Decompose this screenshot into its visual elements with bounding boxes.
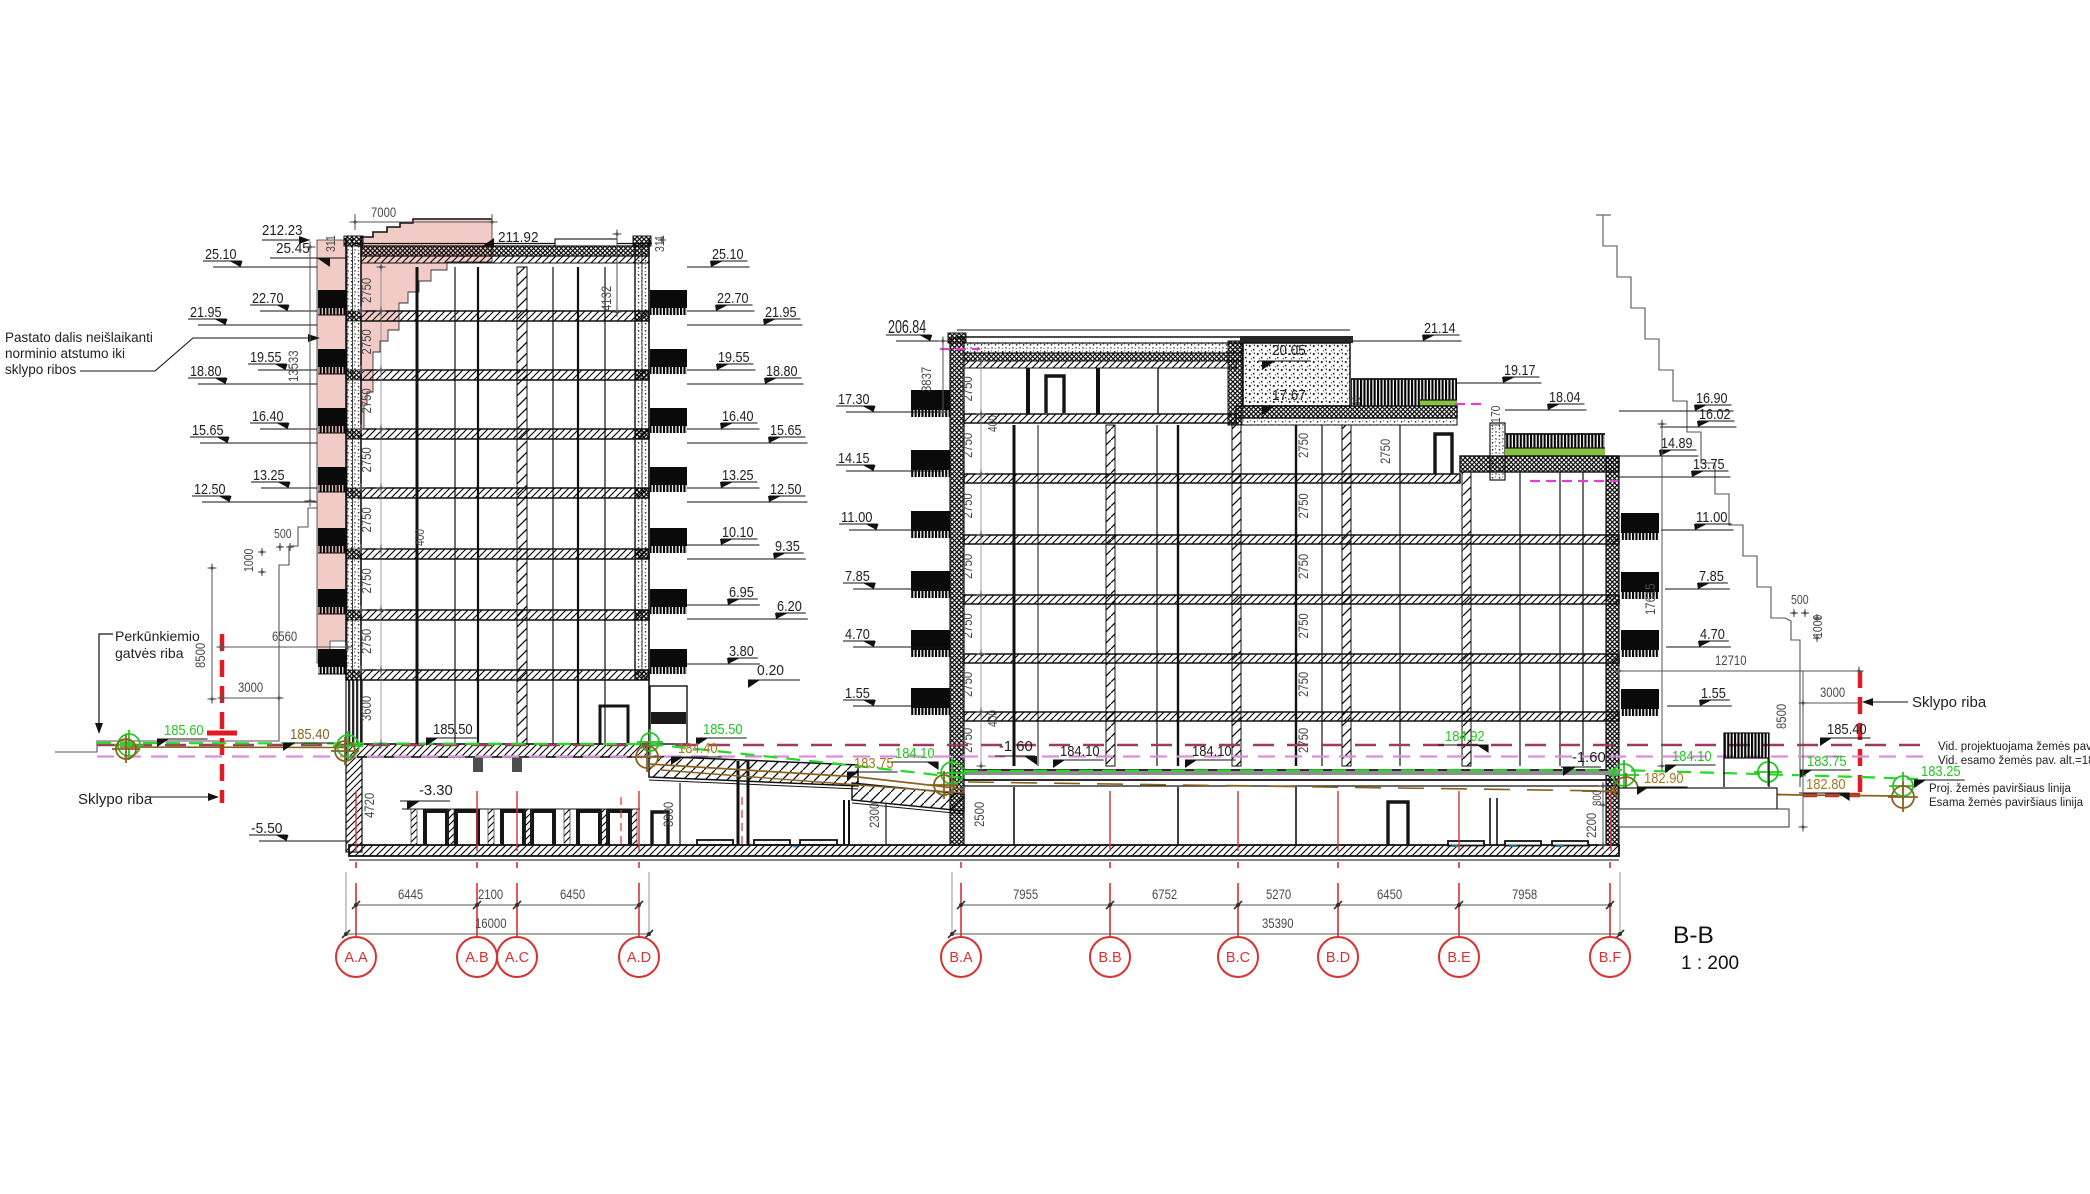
svg-text:3000: 3000: [238, 679, 263, 695]
svg-text:206.84: 206.84: [888, 316, 926, 337]
svg-text:1000: 1000: [241, 549, 256, 572]
svg-text:Esama žemės paviršiaus linija: Esama žemės paviršiaus linija: [1929, 797, 2084, 809]
svg-text:B.F: B.F: [1599, 950, 1622, 966]
svg-text:22.70: 22.70: [717, 290, 749, 307]
svg-text:1170: 1170: [1489, 405, 1503, 428]
svg-text:6560: 6560: [272, 628, 297, 644]
svg-text:400: 400: [413, 529, 427, 546]
svg-text:7.85: 7.85: [1699, 568, 1724, 585]
svg-text:8500: 8500: [192, 643, 208, 668]
svg-text:2750: 2750: [1295, 613, 1311, 638]
svg-text:13.25: 13.25: [722, 467, 754, 484]
svg-text:311: 311: [653, 235, 667, 252]
svg-text:2750: 2750: [358, 568, 374, 593]
svg-text:185.50: 185.50: [433, 721, 473, 738]
svg-text:184.10: 184.10: [1060, 743, 1100, 760]
svg-text:2750: 2750: [358, 507, 374, 532]
svg-text:B.E: B.E: [1447, 950, 1471, 966]
svg-text:2750: 2750: [358, 388, 374, 413]
svg-text:6450: 6450: [1377, 886, 1402, 902]
svg-text:A.A: A.A: [344, 950, 368, 966]
svg-text:185.40: 185.40: [1827, 721, 1867, 738]
svg-text:25.10: 25.10: [712, 246, 744, 263]
svg-text:-5.50: -5.50: [251, 820, 283, 837]
svg-text:7000: 7000: [371, 204, 396, 220]
svg-text:2200: 2200: [1583, 813, 1599, 838]
svg-text:2750: 2750: [1295, 728, 1311, 753]
svg-text:12.50: 12.50: [194, 481, 226, 498]
svg-text:2500: 2500: [971, 802, 987, 827]
svg-text:2750: 2750: [959, 613, 975, 638]
svg-text:5270: 5270: [1266, 886, 1291, 902]
svg-text:Vid. esamo žemės pav. alt.=184: Vid. esamo žemės pav. alt.=184.92: [1938, 755, 2090, 767]
svg-text:Sklypo riba: Sklypo riba: [1912, 694, 1987, 711]
svg-text:184.10: 184.10: [895, 745, 935, 762]
svg-text:1.55: 1.55: [845, 685, 870, 702]
svg-text:8500: 8500: [1773, 704, 1789, 729]
svg-text:20.05: 20.05: [1272, 342, 1306, 359]
svg-text:3837: 3837: [918, 367, 934, 392]
svg-text:-1.60: -1.60: [999, 738, 1033, 755]
svg-text:2750: 2750: [1295, 554, 1311, 579]
svg-text:2750: 2750: [358, 447, 374, 472]
svg-text:12710: 12710: [1715, 652, 1747, 668]
svg-text:sklypo ribos: sklypo ribos: [5, 362, 77, 377]
svg-text:A.D: A.D: [627, 950, 651, 966]
svg-text:17.30: 17.30: [838, 391, 870, 408]
svg-text:11.00: 11.00: [1696, 509, 1728, 526]
svg-text:16.40: 16.40: [252, 408, 284, 425]
svg-text:3.80: 3.80: [729, 643, 754, 660]
svg-text:19.55: 19.55: [718, 349, 750, 366]
svg-text:25.10: 25.10: [205, 246, 237, 263]
svg-text:2750: 2750: [959, 493, 975, 518]
svg-text:Pastato dalis neišlaikanti: Pastato dalis neišlaikanti: [5, 330, 153, 345]
svg-text:7955: 7955: [1013, 886, 1038, 902]
svg-text:10.10: 10.10: [722, 524, 754, 541]
svg-text:4132: 4132: [598, 286, 614, 311]
svg-text:21.14: 21.14: [1424, 320, 1456, 337]
svg-text:-1.60: -1.60: [1572, 749, 1606, 766]
svg-text:18.80: 18.80: [190, 363, 222, 380]
svg-text:25.45: 25.45: [276, 240, 310, 257]
svg-text:15.65: 15.65: [192, 422, 224, 439]
svg-text:7958: 7958: [1512, 886, 1537, 902]
svg-text:-3.30: -3.30: [419, 782, 453, 799]
svg-text:3600: 3600: [358, 696, 374, 721]
svg-text:1.55: 1.55: [1701, 685, 1726, 702]
svg-text:18.04: 18.04: [1549, 389, 1581, 406]
svg-text:4.70: 4.70: [845, 626, 870, 643]
svg-text:80: 80: [1351, 396, 1363, 406]
svg-text:2750: 2750: [959, 728, 975, 753]
svg-text:19.17: 19.17: [1504, 362, 1536, 379]
svg-text:185.40: 185.40: [290, 726, 330, 743]
svg-text:16.40: 16.40: [722, 408, 754, 425]
svg-text:6.20: 6.20: [777, 598, 802, 615]
svg-text:212.23: 212.23: [262, 222, 303, 239]
svg-text:183.75: 183.75: [1807, 753, 1847, 770]
svg-text:19.55: 19.55: [250, 349, 282, 366]
svg-text:17.67: 17.67: [1272, 387, 1306, 404]
svg-text:311: 311: [324, 235, 338, 252]
svg-text:16.02: 16.02: [1699, 406, 1731, 423]
svg-text:21.95: 21.95: [765, 304, 797, 321]
svg-text:500: 500: [274, 526, 292, 541]
svg-text:2750: 2750: [1295, 433, 1311, 458]
svg-text:15.65: 15.65: [770, 422, 802, 439]
svg-text:9.35: 9.35: [775, 538, 800, 555]
svg-text:184.92: 184.92: [1445, 728, 1485, 745]
svg-text:22.70: 22.70: [252, 290, 284, 307]
svg-text:400: 400: [986, 710, 1000, 727]
svg-text:185.60: 185.60: [164, 722, 204, 739]
svg-text:Perkūnkiemio: Perkūnkiemio: [115, 628, 200, 644]
svg-text:4.70: 4.70: [1700, 626, 1725, 643]
svg-text:18.80: 18.80: [766, 363, 798, 380]
svg-text:2750: 2750: [959, 433, 975, 458]
svg-text:2750: 2750: [959, 554, 975, 579]
svg-text:3300: 3300: [660, 802, 676, 827]
svg-text:2750: 2750: [358, 329, 374, 354]
svg-text:500: 500: [1791, 592, 1809, 607]
svg-text:2750: 2750: [1377, 439, 1393, 464]
svg-text:13533: 13533: [285, 350, 301, 382]
svg-text:16000: 16000: [475, 915, 507, 931]
svg-text:184.10: 184.10: [1672, 748, 1712, 765]
svg-text:gatvės riba: gatvės riba: [115, 645, 184, 661]
svg-text:2750: 2750: [1295, 672, 1311, 697]
svg-text:2750: 2750: [959, 672, 975, 697]
svg-text:12.50: 12.50: [770, 481, 802, 498]
svg-text:211.92: 211.92: [498, 229, 539, 246]
svg-text:16.90: 16.90: [1696, 390, 1728, 407]
svg-text:B.B: B.B: [1098, 950, 1121, 966]
svg-text:2300: 2300: [866, 803, 882, 828]
svg-text:13.75: 13.75: [1693, 456, 1725, 473]
svg-text:4720: 4720: [361, 793, 377, 818]
svg-text:6445: 6445: [398, 886, 423, 902]
svg-text:A.C: A.C: [505, 950, 529, 966]
svg-text:182.90: 182.90: [1644, 770, 1684, 787]
svg-text:B.C: B.C: [1226, 950, 1250, 966]
svg-text:Proj. žemės paviršiaus linija: Proj. žemės paviršiaus linija: [1929, 783, 2071, 795]
svg-text:800: 800: [1590, 790, 1604, 806]
svg-text:7.85: 7.85: [845, 568, 870, 585]
svg-text:6752: 6752: [1152, 886, 1177, 902]
svg-text:B-B: B-B: [1673, 922, 1714, 949]
svg-text:2750: 2750: [1295, 493, 1311, 518]
svg-text:182.80: 182.80: [1806, 776, 1846, 793]
svg-text:35390: 35390: [1262, 915, 1294, 931]
svg-text:2750: 2750: [959, 376, 975, 401]
svg-text:3000: 3000: [1820, 684, 1845, 700]
svg-text:2750: 2750: [358, 278, 374, 303]
svg-text:A.B: A.B: [465, 950, 488, 966]
svg-text:2100: 2100: [478, 886, 503, 902]
svg-text:B.D: B.D: [1326, 950, 1350, 966]
svg-text:185.50: 185.50: [703, 721, 743, 738]
svg-text:1 : 200: 1 : 200: [1681, 953, 1739, 974]
svg-text:0.20: 0.20: [757, 662, 784, 679]
svg-text:Vid. projektuojama žemės pav.: Vid. projektuojama žemės pav. alt.=185.4…: [1938, 741, 2090, 753]
svg-text:184.40: 184.40: [678, 740, 718, 757]
svg-text:400: 400: [986, 415, 1000, 432]
svg-text:13.25: 13.25: [253, 467, 285, 484]
svg-text:6450: 6450: [560, 886, 585, 902]
svg-text:2750: 2750: [358, 629, 374, 654]
svg-text:14.89: 14.89: [1661, 435, 1693, 452]
svg-text:norminio atstumo iki: norminio atstumo iki: [5, 346, 125, 361]
svg-text:Sklypo riba: Sklypo riba: [78, 791, 153, 808]
svg-text:21.95: 21.95: [190, 304, 222, 321]
svg-text:6.95: 6.95: [729, 584, 754, 601]
svg-text:B.A: B.A: [949, 950, 973, 966]
svg-text:183.75: 183.75: [854, 755, 894, 772]
svg-text:17615: 17615: [1642, 583, 1658, 615]
svg-text:14.15: 14.15: [838, 450, 870, 467]
svg-text:184.10: 184.10: [1192, 743, 1232, 760]
svg-text:11.00: 11.00: [841, 509, 873, 526]
